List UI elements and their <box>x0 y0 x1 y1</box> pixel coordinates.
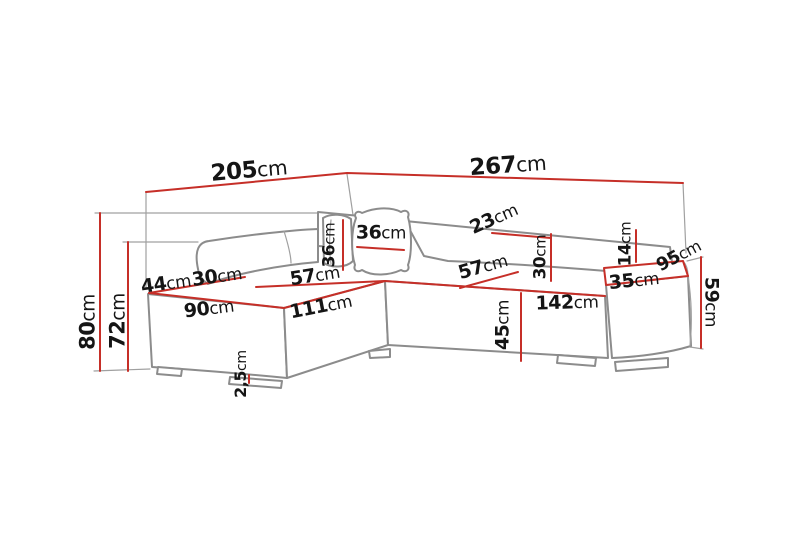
dim-value: 45 <box>492 325 514 350</box>
dim-unit: cm <box>532 235 550 257</box>
dim-unit: cm <box>256 155 288 182</box>
dim-value: 205 <box>210 157 259 187</box>
dim-unit: cm <box>321 223 339 245</box>
sofa-foot <box>615 358 668 371</box>
dim-unit: cm <box>573 291 599 312</box>
dim-label-leg-height: 2,5cm <box>233 350 249 398</box>
dim-value: 80 <box>75 322 99 350</box>
sofa-foot <box>557 355 596 366</box>
dim-label-back-height: 72cm <box>107 293 128 349</box>
dim-value: 90 <box>183 298 211 323</box>
extension-line-corner <box>347 174 353 215</box>
dim-value: 36 <box>320 245 340 268</box>
dim-label-back-to-pouf-gap: 14cm <box>618 222 635 267</box>
dim-value: 14 <box>616 244 636 267</box>
dim-value: 267 <box>469 152 517 181</box>
dim-unit: cm <box>617 222 635 244</box>
dim-value: 2,5 <box>231 371 250 398</box>
dim-unit: cm <box>633 268 660 290</box>
dim-unit: cm <box>78 294 99 322</box>
dim-label-pillow-side-size: 36cm <box>322 223 339 268</box>
dim-label-backrest-height: 30cm <box>533 235 550 280</box>
dim-label-total-height: 80cm <box>77 294 98 350</box>
sofa-foot <box>157 367 182 376</box>
sofa-dimension-diagram: 205cm267cm80cm72cm44cm30cm57cm90cm111cm3… <box>0 0 800 533</box>
dim-unit: cm <box>381 223 406 243</box>
sofa-foot <box>369 349 390 358</box>
dim-value: 142 <box>535 291 574 314</box>
dim-label-pouf-height: 59cm <box>702 277 721 327</box>
dim-unit: cm <box>493 300 513 325</box>
extension-line-bottom <box>94 369 150 371</box>
dim-unit: cm <box>216 263 243 286</box>
dim-value: 72 <box>105 321 129 349</box>
dim-unit: cm <box>208 296 235 319</box>
dim-unit: cm <box>515 151 547 177</box>
dim-value: 57 <box>288 265 317 291</box>
dim-value: 44 <box>139 273 167 298</box>
dim-value: 36 <box>356 222 381 244</box>
dim-value: 59 <box>701 277 723 302</box>
dim-label-seat-front-width: 142cm <box>535 292 599 313</box>
dim-unit: cm <box>165 270 192 293</box>
dim-label-pillow-front-size: 36cm <box>356 224 406 243</box>
dim-value: 30 <box>531 257 551 280</box>
dim-unit: cm <box>234 350 250 371</box>
dim-label-seat-height: 45cm <box>494 300 513 350</box>
dim-unit: cm <box>108 293 129 321</box>
dim-value: 30 <box>190 266 218 291</box>
dim-unit: cm <box>702 302 722 327</box>
dim-value: 35 <box>608 270 636 295</box>
